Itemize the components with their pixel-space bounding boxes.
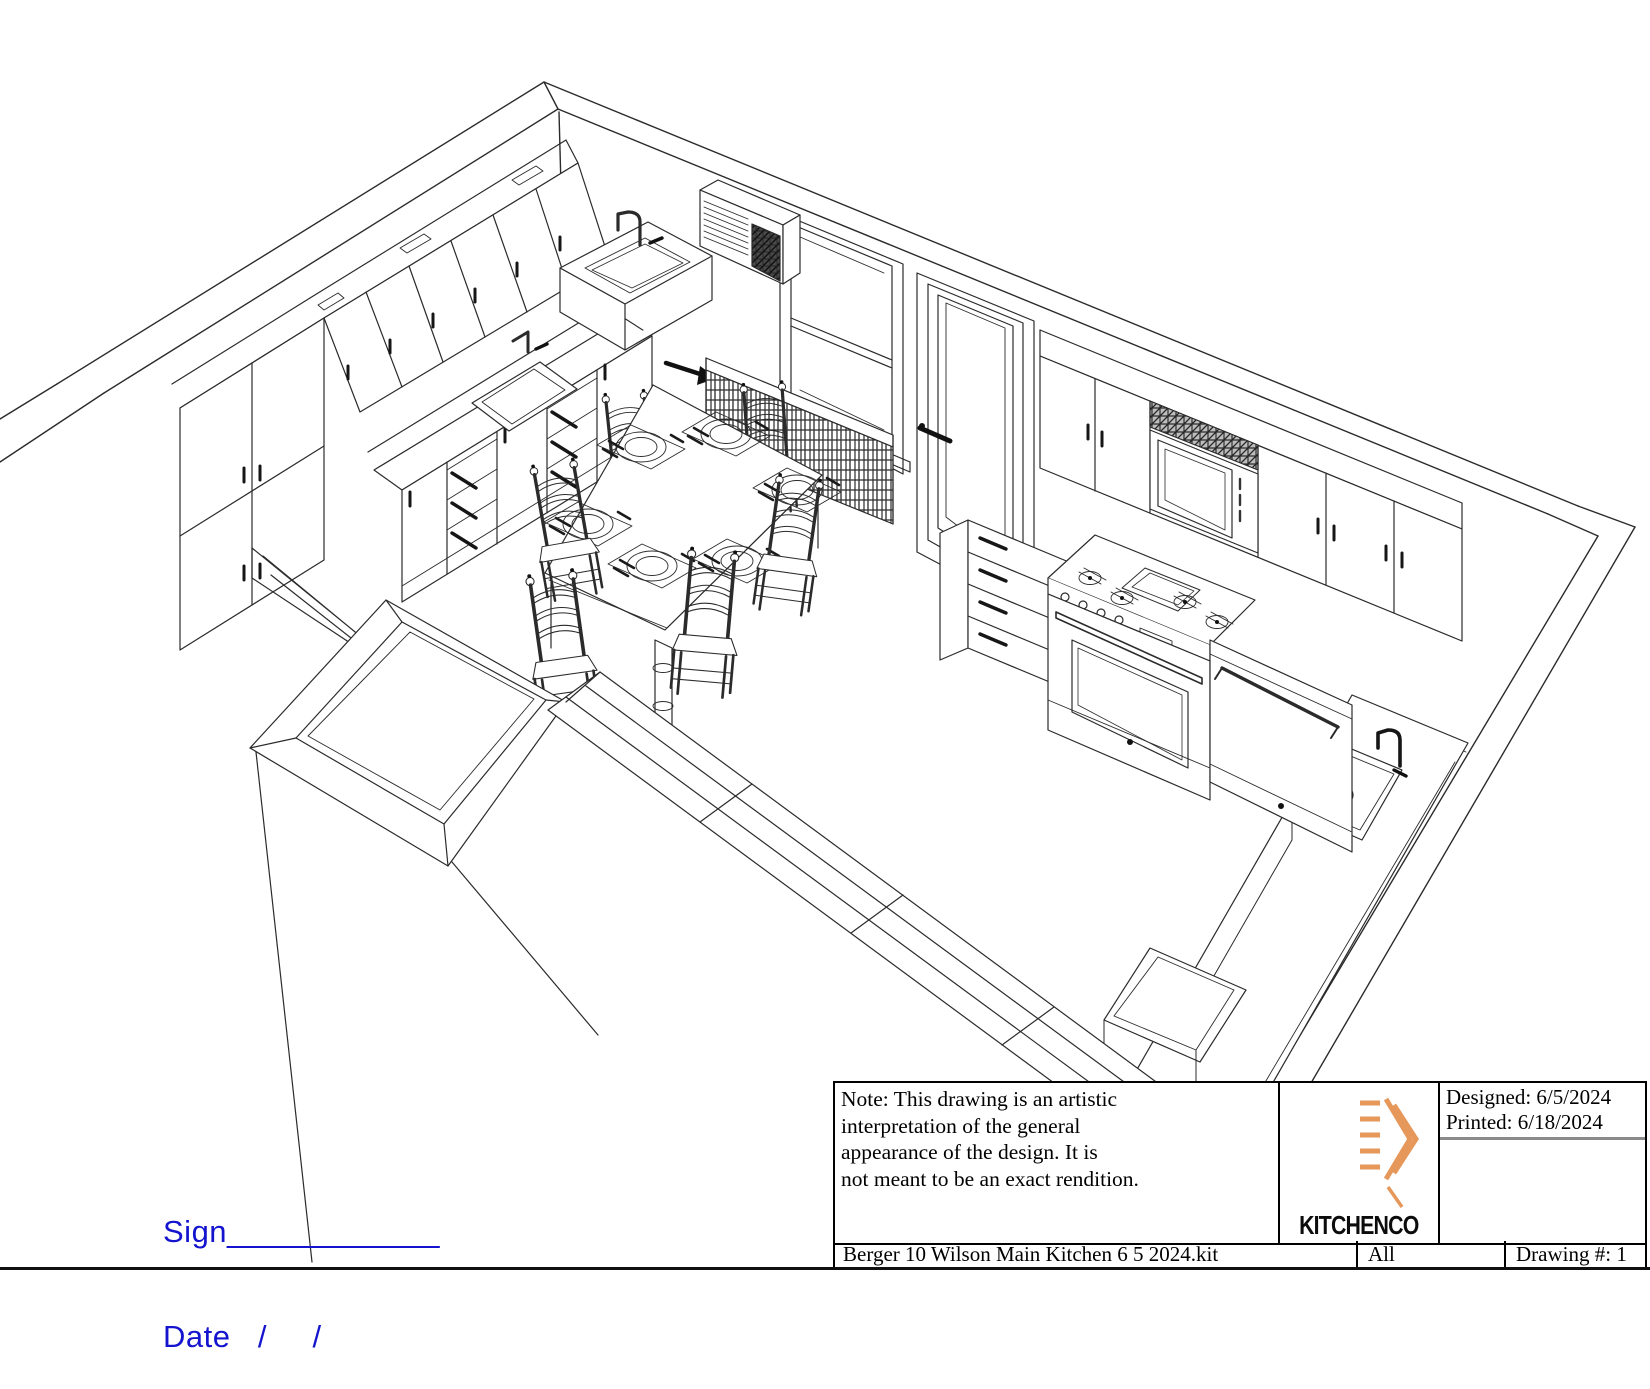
title-block: Note: This drawing is an artistic interp… <box>833 1081 1647 1269</box>
designed-date: Designed: 6/5/2024 <box>1446 1085 1645 1110</box>
note-line-4: not meant to be an exact rendition. <box>841 1166 1272 1193</box>
logo-cell: KITCHENCO <box>1280 1083 1440 1243</box>
logo-text: KITCHENCO <box>1299 1210 1418 1241</box>
kitchenco-logo-mark-icon <box>1358 1095 1420 1213</box>
microwave <box>1150 401 1258 553</box>
date-line: Date / / <box>163 1319 440 1354</box>
title-block-bottom-row: Berger 10 Wilson Main Kitchen 6 5 2024.k… <box>835 1241 1645 1267</box>
note-cell: Note: This drawing is an artistic interp… <box>835 1083 1280 1243</box>
note-line-2: interpretation of the general <box>841 1113 1272 1140</box>
file-name-cell: Berger 10 Wilson Main Kitchen 6 5 2024.k… <box>835 1241 1358 1267</box>
air-conditioner <box>700 180 800 284</box>
sheet-cell: All <box>1358 1241 1506 1267</box>
drawing-number-cell: Drawing #: 1 <box>1506 1241 1645 1268</box>
page-border-bottom <box>0 1267 1650 1270</box>
dates-cell: Designed: 6/5/2024 Printed: 6/18/2024 <box>1440 1083 1645 1243</box>
dates-text: Designed: 6/5/2024 Printed: 6/18/2024 <box>1440 1083 1645 1140</box>
note-line-3: appearance of the design. It is <box>841 1139 1272 1166</box>
note-line-1: Note: This drawing is an artistic <box>841 1086 1272 1113</box>
printed-date: Printed: 6/18/2024 <box>1446 1110 1645 1135</box>
title-block-main-row: Note: This drawing is an artistic interp… <box>835 1083 1645 1245</box>
sign-line: Sign____________ <box>163 1214 440 1249</box>
